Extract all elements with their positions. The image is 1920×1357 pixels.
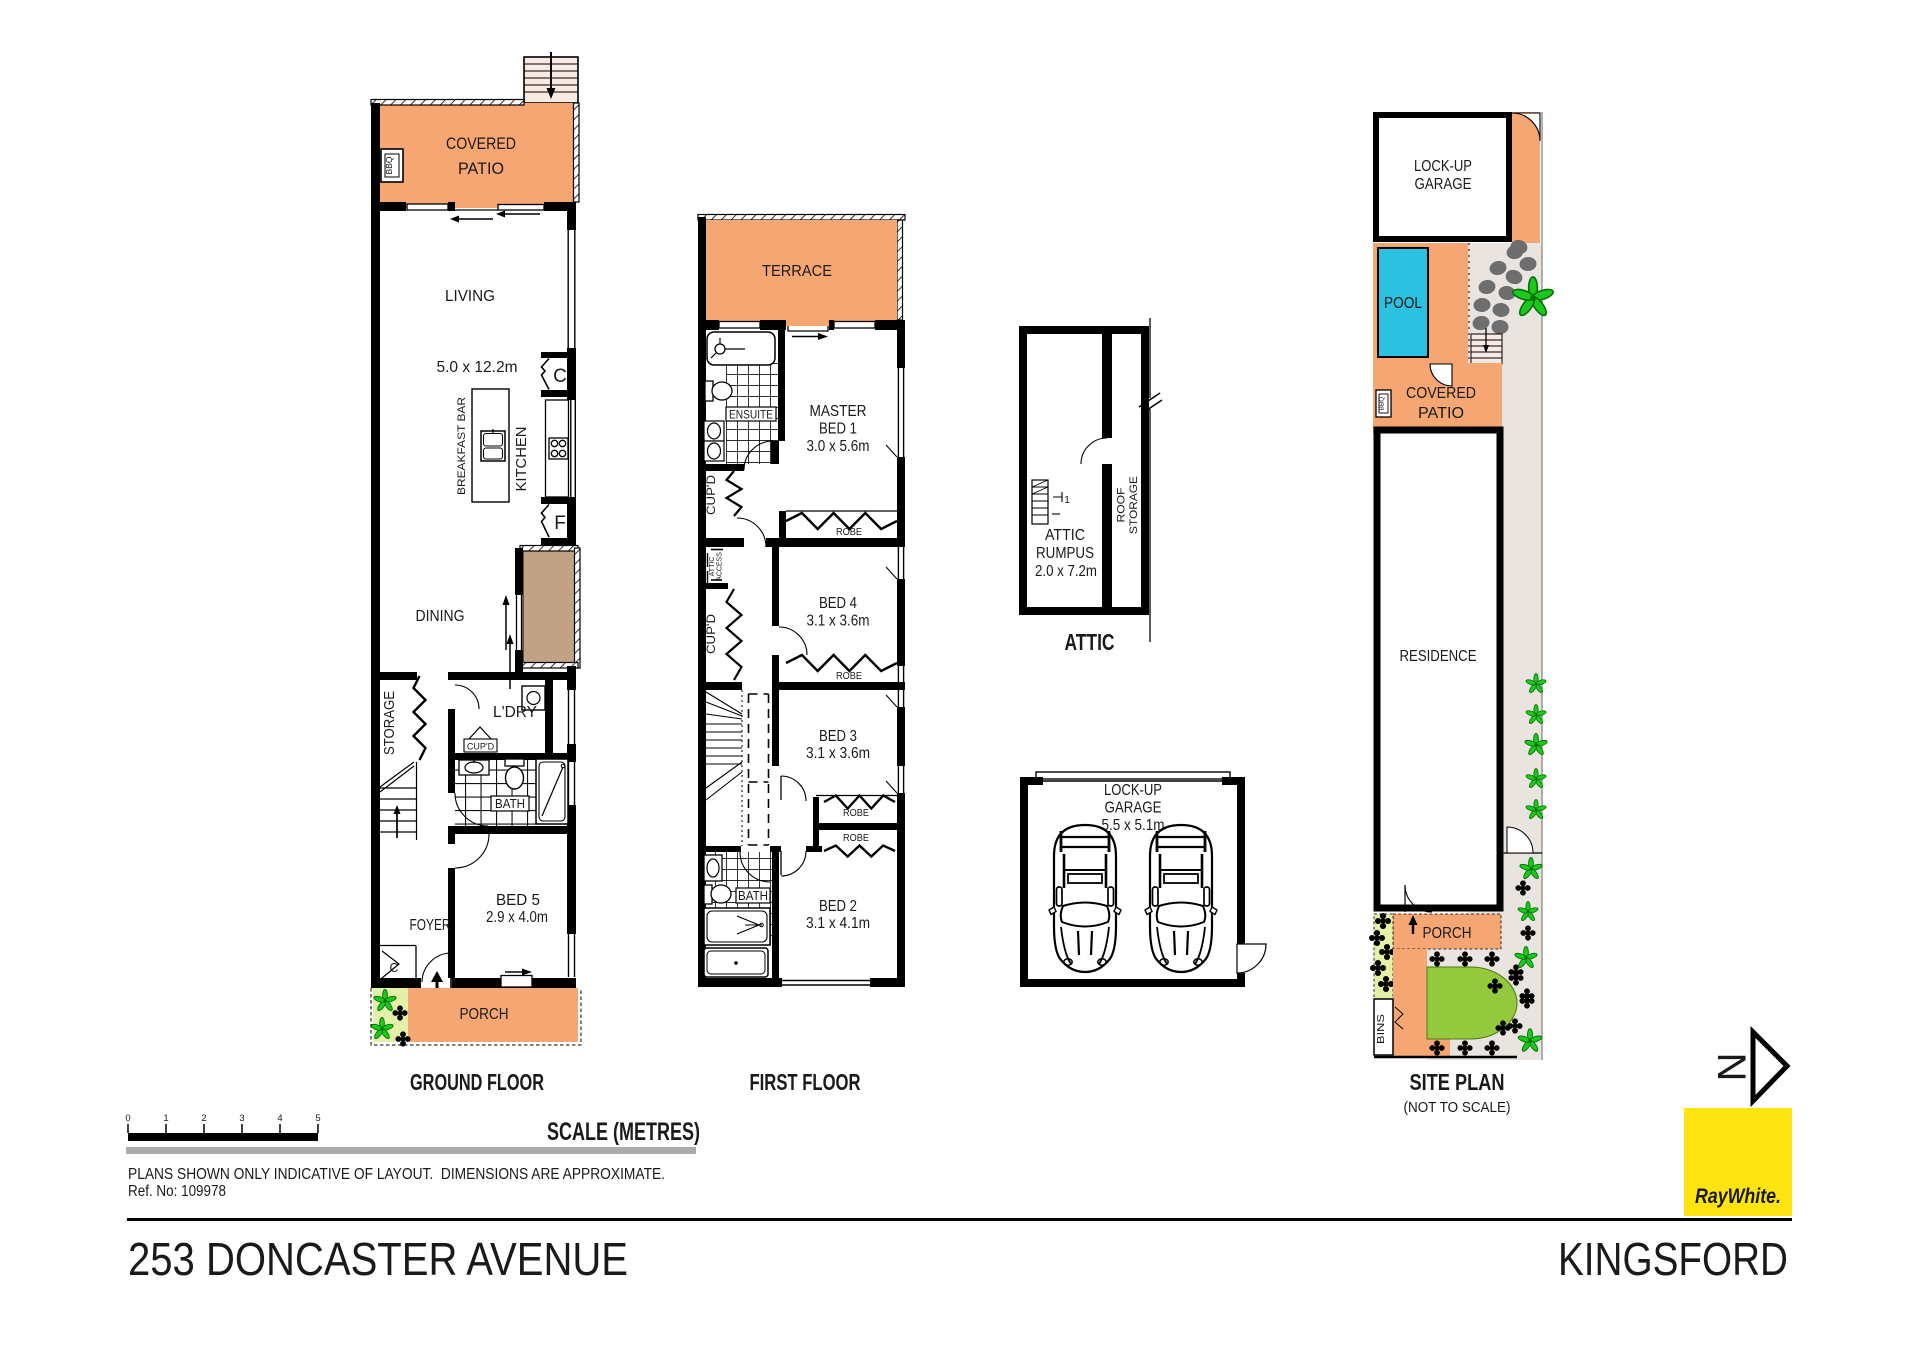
svg-text:BED 3: BED 3: [819, 728, 857, 745]
svg-text:BINS: BINS: [1375, 1014, 1387, 1044]
svg-text:ROBE: ROBE: [836, 671, 862, 682]
svg-text:ACCESS: ACCESS: [717, 552, 724, 581]
svg-text:POOL: POOL: [1384, 295, 1422, 312]
svg-text:KINGSFORD: KINGSFORD: [1558, 1233, 1788, 1285]
svg-text:BREAKFAST BAR: BREAKFAST BAR: [456, 397, 468, 495]
svg-text:1: 1: [1064, 495, 1070, 506]
svg-text:BED 2: BED 2: [819, 898, 857, 915]
svg-text:5.0 x 12.2m: 5.0 x 12.2m: [437, 359, 518, 376]
svg-text:ROBE: ROBE: [843, 833, 869, 844]
svg-text:N: N: [1709, 1053, 1753, 1082]
svg-text:3.1 x 3.6m: 3.1 x 3.6m: [806, 745, 870, 762]
svg-text:GARAGE: GARAGE: [1105, 800, 1162, 817]
svg-text:2.0 x 7.2m: 2.0 x 7.2m: [1035, 563, 1097, 580]
svg-text:4: 4: [277, 1113, 282, 1124]
svg-text:DINING: DINING: [416, 608, 465, 625]
svg-text:STORAGE: STORAGE: [1128, 476, 1140, 534]
svg-text:PATIO: PATIO: [1418, 405, 1464, 422]
svg-text:BED 4: BED 4: [819, 595, 857, 612]
svg-text:5: 5: [315, 1113, 320, 1124]
svg-text:LIVING: LIVING: [445, 288, 495, 305]
svg-text:BED 5: BED 5: [496, 892, 540, 909]
svg-text:ATTIC: ATTIC: [1065, 629, 1115, 655]
svg-text:2: 2: [201, 1113, 206, 1124]
svg-text:GROUND FLOOR: GROUND FLOOR: [410, 1069, 544, 1095]
svg-text:TERRACE: TERRACE: [762, 263, 832, 280]
svg-text:PLANS SHOWN ONLY INDICATIVE OF: PLANS SHOWN ONLY INDICATIVE OF LAYOUT. D…: [128, 1166, 665, 1183]
svg-text:1: 1: [163, 1113, 168, 1124]
svg-text:2.9 x 4.0m: 2.9 x 4.0m: [486, 909, 548, 926]
svg-text:BBQ: BBQ: [384, 156, 394, 174]
svg-text:COVERED: COVERED: [1406, 385, 1476, 402]
svg-text:RESIDENCE: RESIDENCE: [1400, 648, 1477, 665]
svg-text:BBQ: BBQ: [1379, 397, 1386, 411]
svg-text:BED 1: BED 1: [819, 421, 857, 438]
svg-text:BATH: BATH: [738, 889, 768, 903]
svg-text:SITE PLAN: SITE PLAN: [1410, 1069, 1505, 1095]
svg-text:MASTER: MASTER: [810, 403, 867, 420]
svg-text:ROOF: ROOF: [1116, 487, 1128, 522]
svg-text:L'DRY: L'DRY: [493, 704, 537, 721]
svg-text:PORCH: PORCH: [460, 1006, 509, 1023]
svg-text:ATTIC: ATTIC: [709, 557, 716, 577]
svg-text:GARAGE: GARAGE: [1415, 176, 1472, 193]
svg-text:ENSUITE: ENSUITE: [729, 408, 773, 422]
svg-text:ATTIC: ATTIC: [1045, 527, 1085, 544]
svg-text:PATIO: PATIO: [458, 159, 504, 178]
svg-text:253 DONCASTER AVENUE: 253 DONCASTER AVENUE: [128, 1233, 628, 1285]
svg-text:RayWhite.: RayWhite.: [1695, 1185, 1781, 1208]
svg-text:ROBE: ROBE: [843, 808, 869, 819]
svg-text:ROBE: ROBE: [836, 527, 862, 538]
svg-text:LOCK-UP: LOCK-UP: [1414, 158, 1472, 175]
svg-text:CUP'D: CUP'D: [467, 742, 495, 752]
svg-text:COVERED: COVERED: [446, 134, 516, 153]
svg-text:STORAGE: STORAGE: [381, 691, 398, 755]
svg-text:F: F: [554, 513, 566, 534]
svg-text:LOCK-UP: LOCK-UP: [1104, 782, 1162, 799]
svg-text:3.1 x 3.6m: 3.1 x 3.6m: [807, 613, 870, 630]
svg-text:Ref. No: 109978: Ref. No: 109978: [128, 1183, 226, 1200]
svg-text:CUP'D: CUP'D: [706, 475, 718, 515]
svg-text:CUP'D: CUP'D: [706, 614, 718, 654]
svg-text:FOYER: FOYER: [410, 917, 451, 934]
svg-text:3.0 x 5.6m: 3.0 x 5.6m: [807, 438, 870, 455]
svg-text:3.1 x 4.1m: 3.1 x 4.1m: [806, 915, 870, 932]
svg-text:3: 3: [239, 1113, 244, 1124]
svg-text:BATH: BATH: [495, 797, 525, 811]
svg-text:5.5 x 5.1m: 5.5 x 5.1m: [1102, 817, 1165, 834]
svg-text:SCALE (METRES): SCALE (METRES): [547, 1118, 700, 1146]
svg-text:PORCH: PORCH: [1423, 925, 1472, 942]
svg-text:0: 0: [125, 1113, 130, 1124]
svg-text:C: C: [553, 366, 567, 387]
svg-text:C: C: [389, 961, 398, 975]
svg-text:FIRST FLOOR: FIRST FLOOR: [750, 1069, 861, 1095]
svg-text:KITCHEN: KITCHEN: [514, 427, 530, 492]
svg-text:RUMPUS: RUMPUS: [1036, 545, 1094, 562]
svg-text:(NOT TO SCALE): (NOT TO SCALE): [1404, 1099, 1511, 1116]
